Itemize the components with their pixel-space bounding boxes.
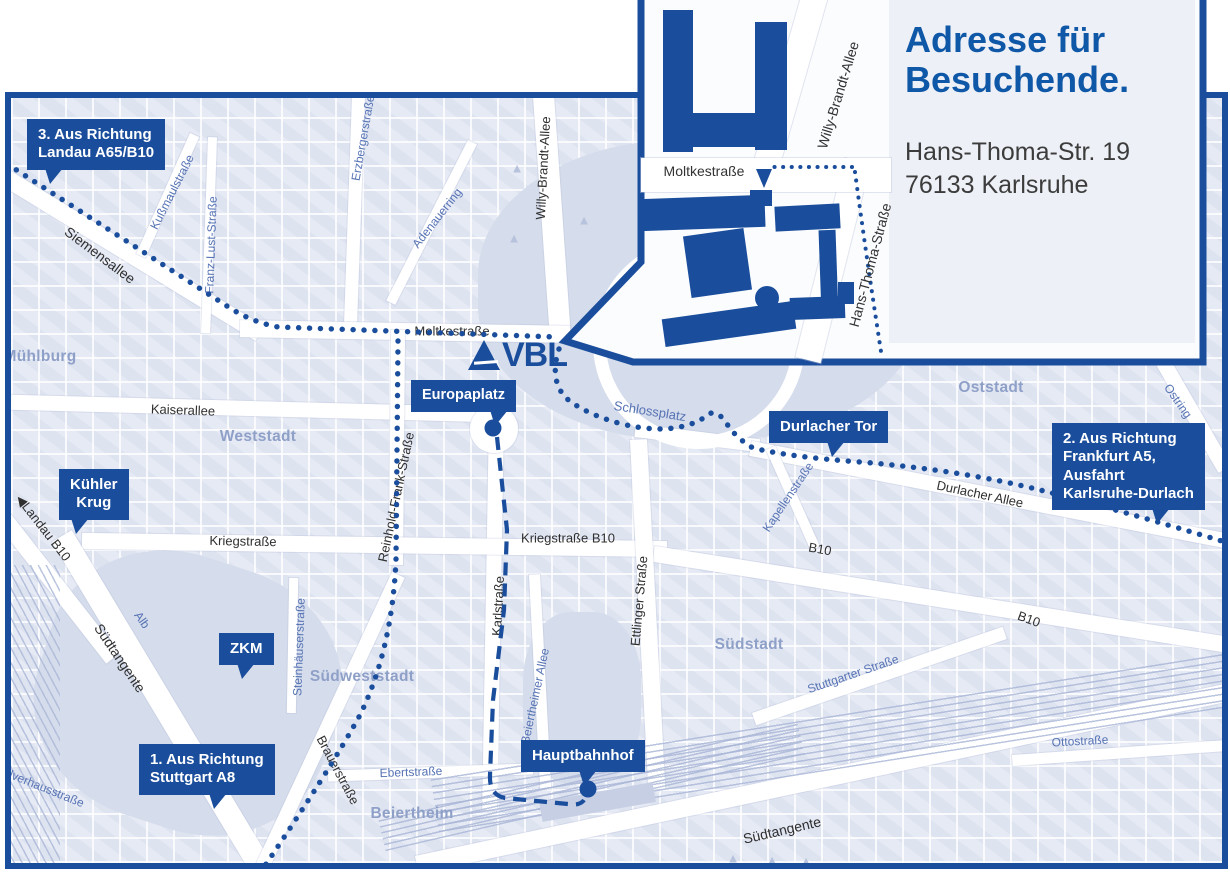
inset-detail-map: Moltkestraße Willy-Brandt-Allee Hans-Tho… <box>637 0 1209 365</box>
inset-title: Adresse für Besuchende. <box>905 20 1129 100</box>
city-map-page: ▲ ▲ ▲ ▲ ▲ ▲ Mühlburg Weststadt Oststadt … <box>0 0 1230 874</box>
inset-label-moltkestrasse: Moltkestraße <box>664 163 745 179</box>
inset-address: Hans-Thoma-Str. 19 76133 Karlsruhe <box>905 136 1130 202</box>
inset-entrance-arrow-icon <box>756 169 772 188</box>
